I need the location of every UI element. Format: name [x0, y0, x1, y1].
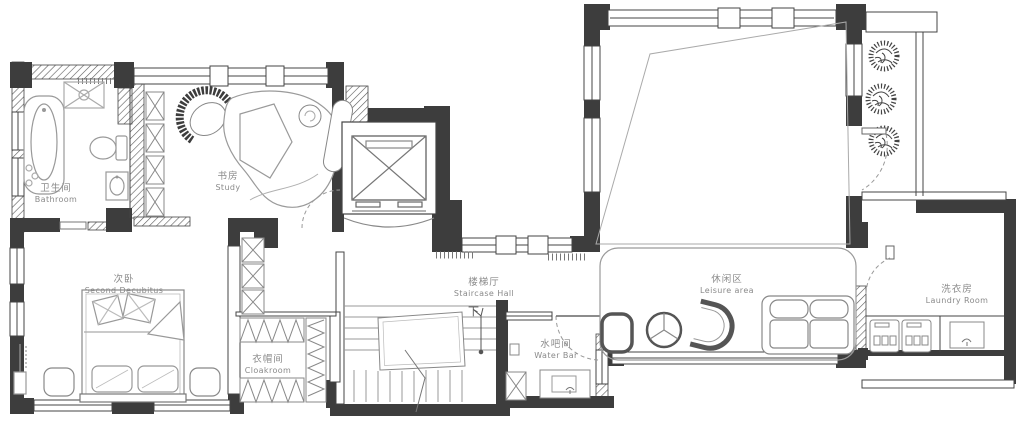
room-label-staircase-hall: 楼梯厅 Staircase Hall: [454, 276, 514, 298]
leisure-furniture: [600, 248, 856, 360]
svg-text:Second Decubitus: Second Decubitus: [85, 286, 164, 295]
door-swing-icon: [866, 258, 890, 294]
sofa-icon: [762, 296, 854, 354]
svg-text:水吧间: 水吧间: [540, 338, 572, 350]
plant-icon: [868, 86, 894, 112]
room-label-laundry-room: 洗衣房 Laundry Room: [926, 283, 989, 305]
shower-icon: [64, 82, 104, 108]
svg-text:洗衣房: 洗衣房: [941, 283, 973, 295]
svg-text:卫生间: 卫生间: [40, 182, 72, 194]
void-line-icon: [596, 22, 850, 244]
toilet-icon: [90, 136, 127, 160]
cabinet-x-icon: [506, 372, 526, 400]
bedroom-furniture: [14, 290, 220, 402]
washer-icon: [902, 320, 931, 352]
svg-text:楼梯厅: 楼梯厅: [468, 276, 500, 288]
svg-text:Water Bar: Water Bar: [534, 351, 578, 360]
room-label-second-bedroom: 次卧 Second Decubitus: [85, 273, 164, 295]
nightstand-icon: [190, 368, 220, 396]
svg-text:Bathroom: Bathroom: [35, 195, 78, 204]
floor-plan: 卫生间 Bathroom 书房 Study 次卧 Second Decubitu…: [0, 0, 1024, 428]
hanger-rail-icon: [306, 318, 326, 402]
svg-text:Laundry Room: Laundry Room: [926, 296, 989, 305]
svg-text:休闲区: 休闲区: [711, 273, 743, 285]
u-chair-icon: [690, 301, 737, 353]
svg-text:书房: 书房: [217, 170, 238, 182]
corridor-shelf-x-icon: [242, 238, 264, 314]
stairs-icon: [344, 306, 496, 412]
stool: [510, 344, 519, 355]
terrace-plants: [868, 43, 897, 154]
svg-text:Leisure area: Leisure area: [700, 286, 754, 295]
svg-text:Study: Study: [215, 183, 240, 192]
svg-text:Staircase Hall: Staircase Hall: [454, 289, 514, 298]
room-label-leisure-area: 休闲区 Leisure area: [700, 273, 754, 295]
elevator: [342, 122, 436, 227]
bed-icon: [80, 290, 186, 402]
room-label-study: 书房 Study: [215, 170, 240, 192]
round-table-icon: [647, 313, 681, 347]
washer-icon: [870, 320, 899, 352]
u-chair-icon: [602, 314, 632, 352]
room-label-cloakroom: 衣帽间 Cloakroom: [245, 353, 292, 375]
room-label-water-bar: 水吧间 Water Bar: [534, 338, 578, 360]
elevator-icon: [352, 136, 426, 200]
svg-text:Cloakroom: Cloakroom: [245, 366, 292, 375]
sink-icon: [540, 370, 590, 398]
svg-text:次卧: 次卧: [113, 273, 134, 285]
stairs-down-label: 下: [468, 305, 479, 318]
plant-icon: [871, 43, 897, 69]
sink-icon: [950, 322, 984, 348]
room-label-bathroom: 卫生间 Bathroom: [35, 182, 78, 204]
bathroom-door-leaf: [60, 222, 86, 229]
wardrobe-x-icon: [146, 92, 164, 216]
bathtub-icon: [24, 96, 64, 194]
nightstand-icon: [44, 368, 74, 396]
basin-icon: [106, 172, 128, 200]
svg-text:衣帽间: 衣帽间: [252, 353, 284, 365]
laundry-door: [866, 246, 894, 294]
side-table-icon: [299, 105, 321, 127]
